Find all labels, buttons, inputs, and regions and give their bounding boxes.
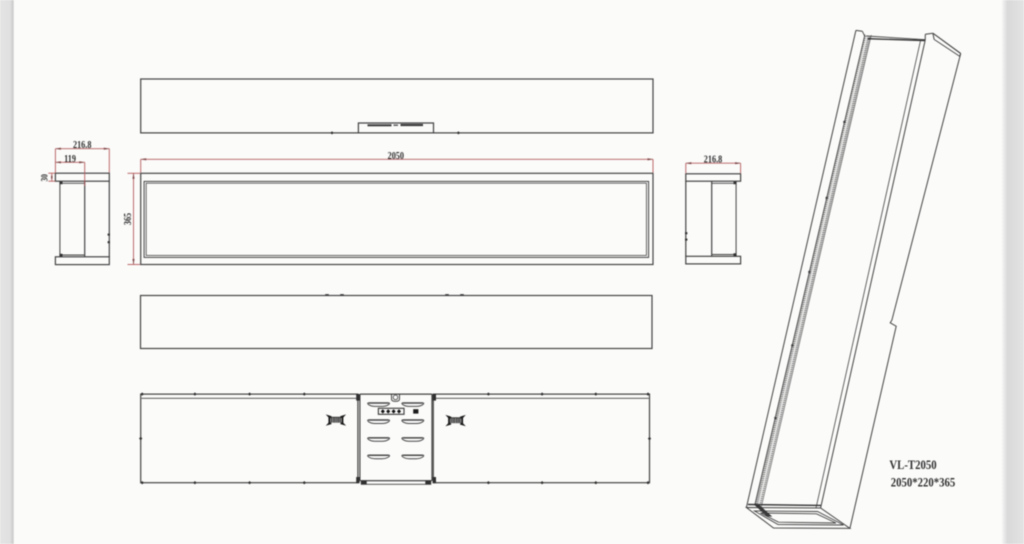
svg-text:365: 365 xyxy=(123,213,134,226)
svg-text:119: 119 xyxy=(64,154,76,165)
svg-text:2050: 2050 xyxy=(388,151,405,162)
svg-text:VL-T2050: VL-T2050 xyxy=(889,457,936,472)
svg-text:216.8: 216.8 xyxy=(73,140,92,151)
svg-text:216.8: 216.8 xyxy=(704,155,723,166)
svg-text:30: 30 xyxy=(40,174,50,181)
svg-text:2050*220*365: 2050*220*365 xyxy=(891,474,956,489)
